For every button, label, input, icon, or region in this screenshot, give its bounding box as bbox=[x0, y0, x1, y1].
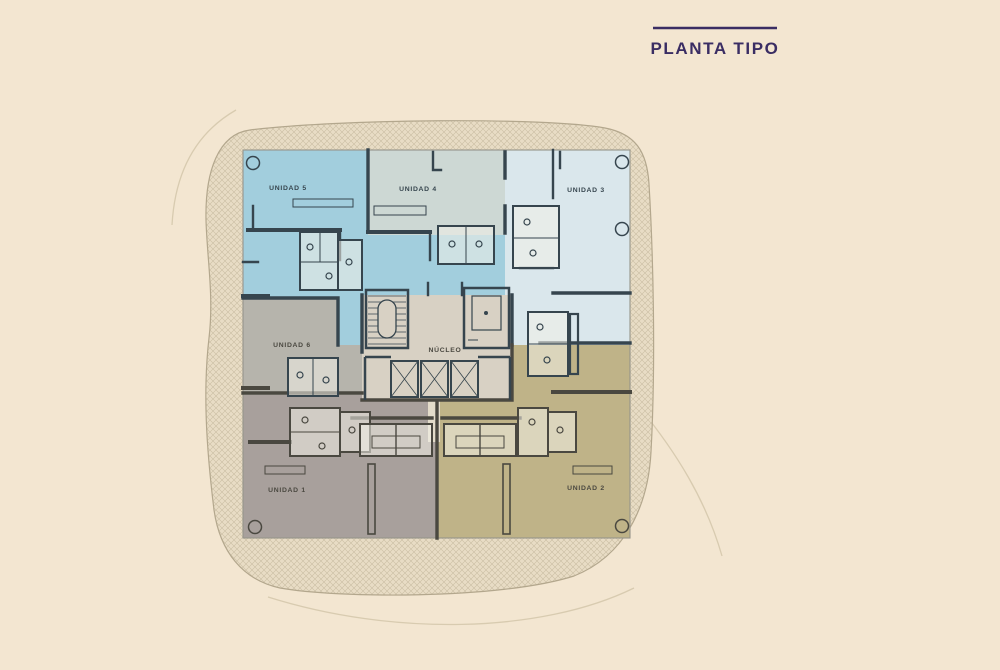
bath-cluster-unit3 bbox=[513, 206, 559, 268]
bath-cluster-unit4 bbox=[438, 226, 494, 264]
unit-1-label: UNIDAD 1 bbox=[268, 487, 306, 494]
unit-6-label: UNIDAD 6 bbox=[273, 342, 311, 349]
unit-2-label: UNIDAD 2 bbox=[567, 485, 605, 492]
core-label: NÚCLEO bbox=[429, 345, 462, 354]
unit-3-label: UNIDAD 3 bbox=[567, 187, 605, 194]
bath-cluster-unit1 bbox=[290, 408, 370, 456]
service-room-dot bbox=[484, 311, 488, 315]
floor-plan-drawing: UNIDAD 5 UNIDAD 4 UNIDAD 3 UNIDAD 6 NÚCL… bbox=[0, 0, 1000, 670]
kitchen-cluster-unit2-upper bbox=[528, 312, 578, 376]
bath-cluster-unit5 bbox=[300, 232, 362, 290]
bath-cluster-unit6 bbox=[288, 358, 338, 396]
stair-core-oval bbox=[378, 300, 396, 338]
floor-plan-page: UNIDAD 5 UNIDAD 4 UNIDAD 3 UNIDAD 6 NÚCL… bbox=[0, 0, 1000, 670]
page-title: PLANTA TIPO bbox=[650, 39, 779, 58]
unit-5-label: UNIDAD 5 bbox=[269, 185, 307, 192]
bath-cluster-unit2 bbox=[518, 408, 576, 456]
unit-4-label: UNIDAD 4 bbox=[399, 186, 437, 193]
